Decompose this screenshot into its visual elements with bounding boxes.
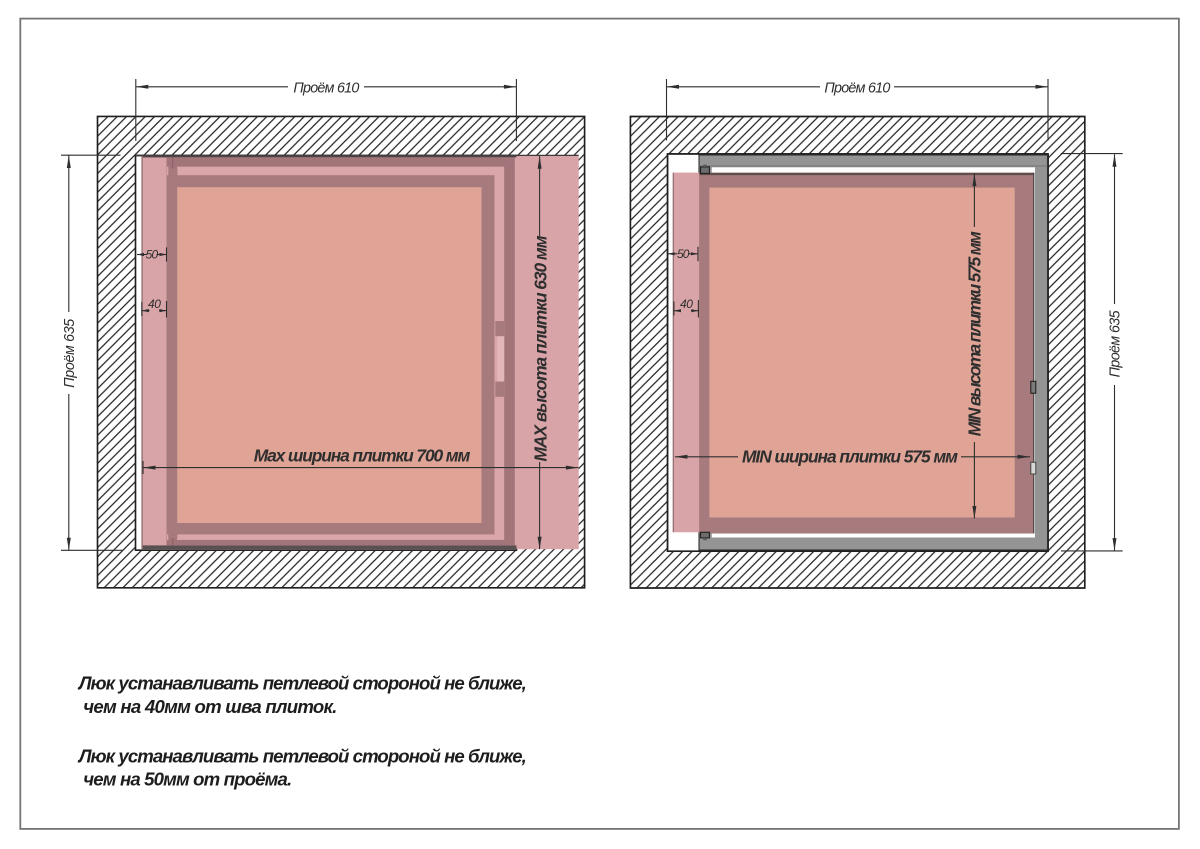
svg-text:Проём 635: Проём 635 xyxy=(1108,310,1124,377)
svg-text:Проём 635: Проём 635 xyxy=(62,319,78,388)
svg-text:Проём 610: Проём 610 xyxy=(293,80,359,96)
svg-text:50: 50 xyxy=(677,247,690,261)
svg-text:Max ширина плитки 700 мм: Max ширина плитки 700 мм xyxy=(254,446,471,466)
svg-text:MIN высота плитки 575 мм: MIN высота плитки 575 мм xyxy=(965,231,985,436)
svg-text:чем на 50мм от проёма.: чем на 50мм от проёма. xyxy=(83,768,291,789)
svg-text:40: 40 xyxy=(680,297,693,311)
svg-text:Проём 610: Проём 610 xyxy=(824,80,890,96)
svg-text:чем на 40мм от шва плиток.: чем на 40мм от шва плиток. xyxy=(83,696,336,717)
svg-text:Люк устанавливать петлевой сто: Люк устанавливать петлевой стороной не б… xyxy=(77,746,526,767)
svg-text:50: 50 xyxy=(146,248,159,262)
svg-text:40: 40 xyxy=(148,297,161,311)
svg-text:Люк устанавливать петлевой сто: Люк устанавливать петлевой стороной не б… xyxy=(77,673,526,694)
svg-text:MIN ширина плитки 575 мм: MIN ширина плитки 575 мм xyxy=(742,446,958,466)
svg-text:MAX высота плитки 630 мм: MAX высота плитки 630 мм xyxy=(531,235,551,461)
